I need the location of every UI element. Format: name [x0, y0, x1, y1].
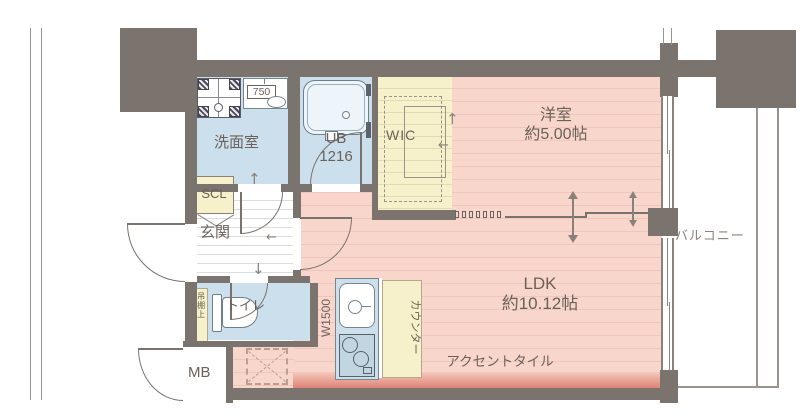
boundary-line [41, 28, 42, 400]
bathtub [303, 80, 369, 135]
window-western-room [661, 96, 674, 208]
door-arc-entry [127, 224, 185, 282]
drain-icon [214, 103, 223, 112]
drain-icon [342, 111, 350, 119]
shower-fixture-icon [366, 84, 371, 96]
vanity-counter: 750 [243, 78, 288, 109]
wall [360, 184, 372, 192]
meter-box-label: MB [188, 364, 211, 382]
door-leaf-ldk [300, 217, 352, 219]
washroom-label: 洗面室 [214, 134, 259, 152]
door-swing-arrow: ← [266, 230, 277, 245]
arrow-down-icon [629, 220, 637, 227]
balcony-edge-line [756, 108, 758, 388]
balcony-label: バルコニー [675, 228, 745, 244]
refrigerator-space [246, 348, 288, 385]
wic-label: WIC [386, 127, 416, 144]
floor-plan: 750 [0, 0, 800, 419]
basin-icon [267, 96, 286, 108]
sliding-door-joint [585, 212, 587, 218]
wall [226, 341, 233, 403]
kitchen-width-label: W1500 [319, 280, 333, 356]
faucet-icon [264, 79, 265, 84]
arrow-up-icon [629, 191, 637, 198]
sliding-door-arrow [572, 198, 574, 236]
accent-tile-label: アクセントタイル [400, 354, 600, 370]
balcony-edge-line [777, 108, 779, 388]
door-arc-meter-box [138, 349, 183, 401]
entrance-label: 玄関 [200, 224, 230, 242]
grill-icon [363, 367, 372, 374]
door-leaf-entry [127, 223, 185, 225]
counter-label: カウンター [407, 285, 421, 369]
western-room-label: 洋室 約5.00帖 [450, 106, 662, 144]
door-leaf-meter-box [138, 348, 183, 350]
toilet-shelf-label: 吊棚上 [196, 292, 206, 319]
wall [372, 76, 378, 220]
window-slide-arrow [632, 196, 634, 222]
door-leaf-washroom [240, 192, 242, 234]
window-ldk [661, 238, 674, 370]
wall [281, 184, 288, 192]
arrow-up-icon [568, 191, 578, 199]
boundary-line [30, 28, 31, 400]
wall [233, 388, 678, 400]
toilet-tank [212, 294, 222, 332]
stove [339, 334, 375, 377]
wall-line [671, 28, 672, 45]
burner-icon [353, 351, 369, 367]
wall [293, 190, 301, 218]
wall [190, 60, 720, 77]
wall [288, 76, 300, 184]
wall [660, 77, 676, 96]
scl-label: SCL [194, 186, 234, 202]
wall [268, 276, 310, 283]
wall [372, 210, 456, 220]
burner-icon [342, 337, 358, 353]
wall [310, 283, 318, 341]
door-swing-arrow: ← [438, 138, 449, 153]
door-swing-arrow: ↓ [252, 260, 265, 278]
arrow-down-icon [568, 235, 578, 243]
wall [197, 341, 318, 347]
door-swing-arrow: ↑ [248, 170, 261, 188]
wall [660, 370, 678, 403]
washing-machine-pan [197, 78, 241, 118]
kitchen-unit [335, 278, 379, 380]
sliding-door-leaf [585, 212, 655, 214]
wall [716, 30, 796, 108]
bath-label: UB 1216 [300, 130, 372, 166]
balcony-edge-line [678, 386, 779, 388]
toilet-label: トイレ [226, 298, 265, 314]
faucet-icon [348, 300, 362, 314]
ldk-label: LDK 約10.12帖 [430, 274, 650, 315]
wall-line [663, 28, 664, 45]
wall [197, 276, 230, 283]
